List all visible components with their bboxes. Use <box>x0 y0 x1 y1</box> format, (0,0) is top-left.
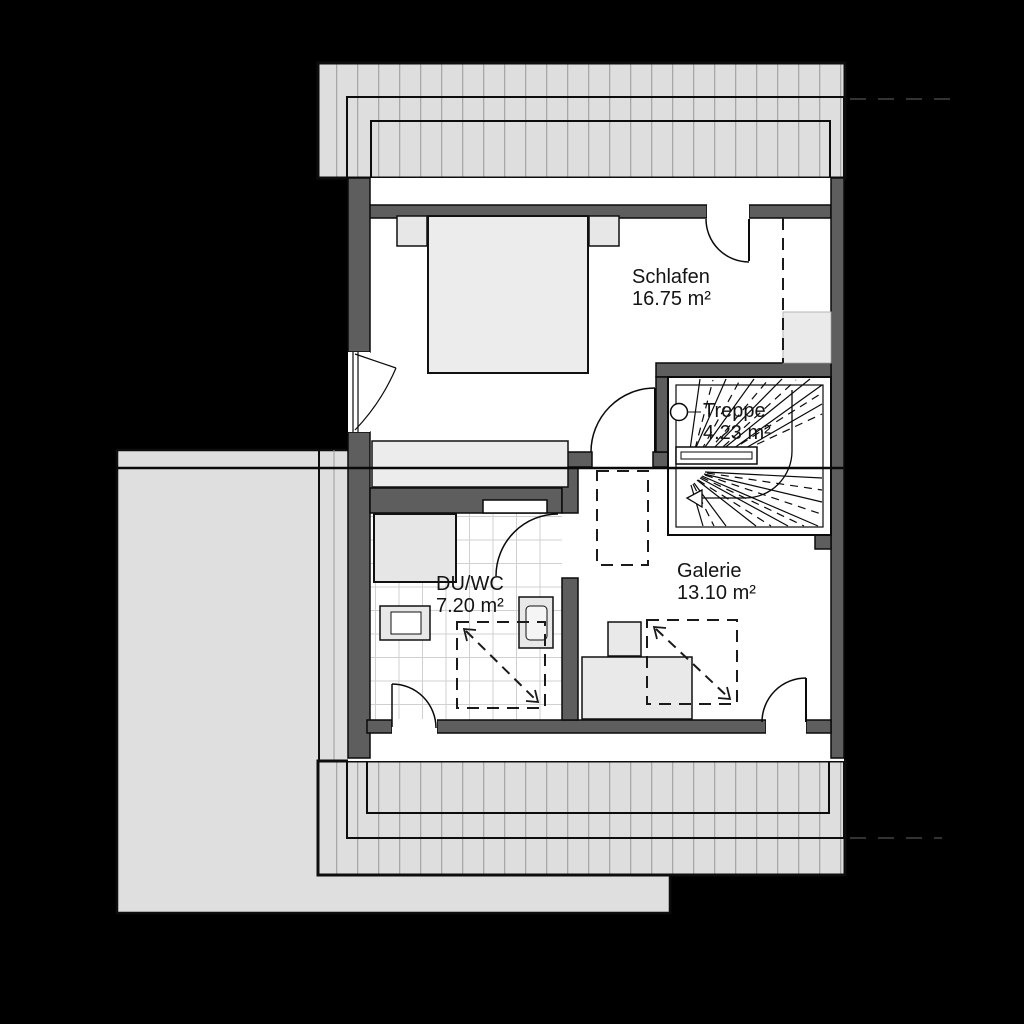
room-label-treppe: Treppe 4.23 m² <box>703 401 771 444</box>
wall-duwc-galerie-lower <box>562 578 578 720</box>
room-label-schlafen: Schlafen 16.75 m² <box>632 267 711 310</box>
wall-left-upper <box>348 178 370 352</box>
opening-duwc-south-door <box>392 719 437 735</box>
room-name: Treppe <box>703 400 766 422</box>
opening-window <box>348 352 370 432</box>
wall-bottom-b <box>437 720 766 733</box>
floorplan-canvas: Schlafen 16.75 m² Treppe 4.23 m² DU/WC 7… <box>0 0 1024 1024</box>
wc-bowl <box>391 612 421 634</box>
room-label-galerie: Galerie 13.10 m² <box>677 561 756 604</box>
opening-top-door <box>707 203 749 220</box>
floorplan-drawing <box>0 0 1024 1024</box>
room-name: Galerie <box>677 560 741 582</box>
wall-bottom-c <box>806 720 831 733</box>
nightstand-left <box>397 216 427 246</box>
wall-top-right <box>749 205 831 218</box>
wall-niche <box>483 500 547 513</box>
roof-band-top <box>318 63 845 178</box>
wall-left-lower <box>348 432 370 758</box>
room-label-duwc: DU/WC 7.20 m² <box>436 574 504 617</box>
room-area: 4.23 m² <box>703 423 771 445</box>
room-area: 13.10 m² <box>677 583 756 605</box>
chair <box>608 622 641 656</box>
wall-bottom-a <box>367 720 392 733</box>
wall-notch-stair <box>815 535 831 549</box>
room-name: Schlafen <box>632 266 710 288</box>
opening-galerie-door <box>766 719 806 735</box>
shower <box>374 514 456 582</box>
bed <box>428 216 588 373</box>
desk <box>582 657 692 719</box>
knee-storage-patch <box>783 312 831 363</box>
room-name: DU/WC <box>436 573 504 595</box>
room-area: 7.20 m² <box>436 596 504 618</box>
sideboard <box>372 441 568 487</box>
stair-handrail-inner <box>681 452 752 459</box>
nightstand-right <box>589 216 619 246</box>
stair-marker-circle <box>671 404 688 421</box>
wall-stair-top <box>656 363 831 377</box>
room-area: 16.75 m² <box>632 289 711 311</box>
roof-band-bottom <box>318 761 845 875</box>
